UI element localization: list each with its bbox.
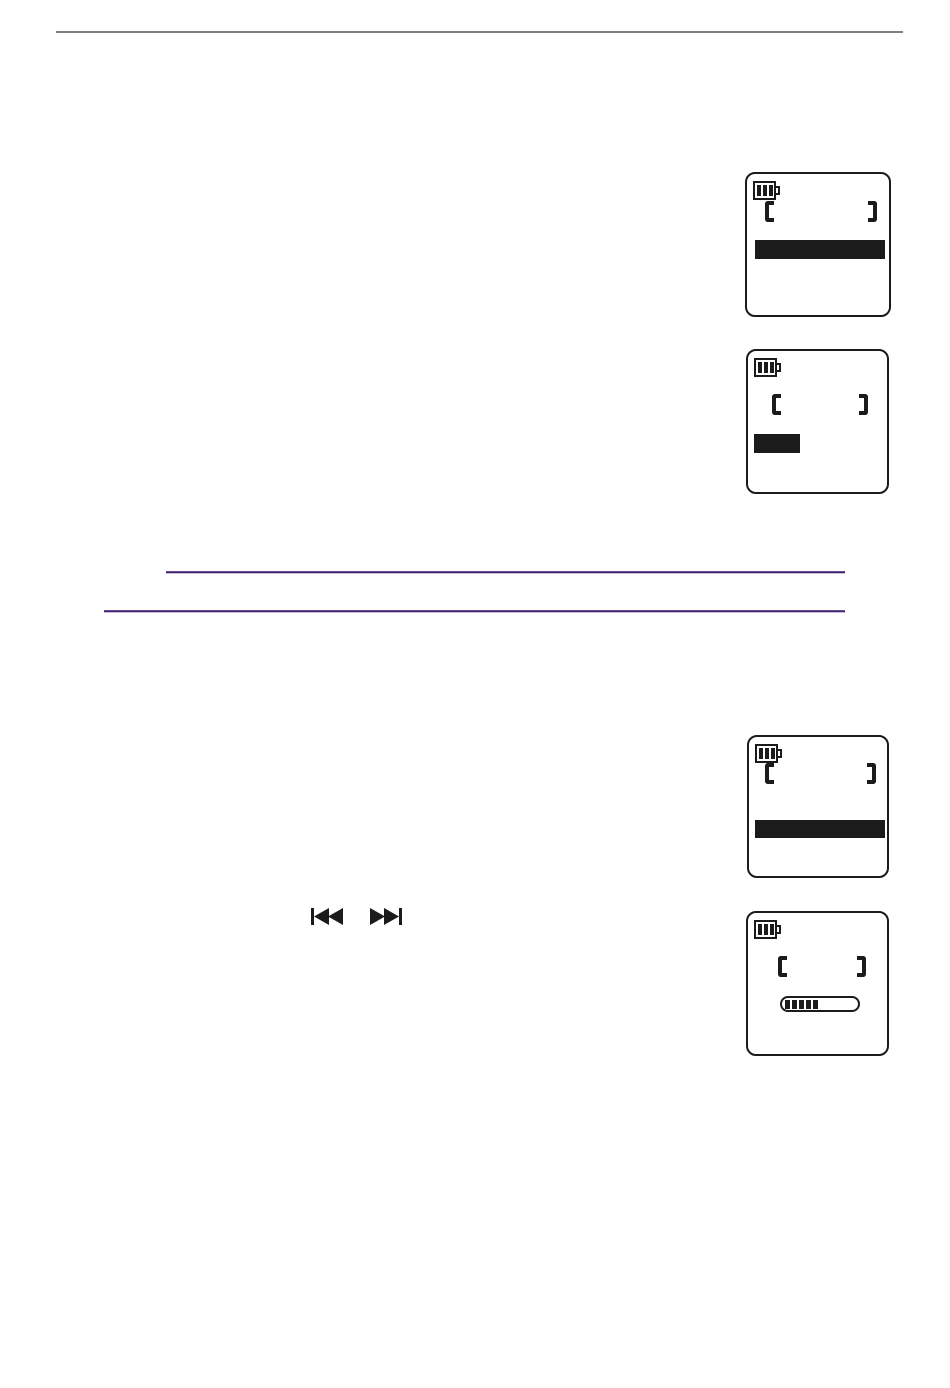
battery-terminal [778, 749, 782, 758]
manual-page [0, 0, 950, 1388]
selected-row-bar [755, 820, 885, 838]
bracket-right-icon [857, 956, 866, 977]
battery-cell [770, 924, 774, 935]
selected-row-bar [755, 240, 885, 259]
meter-segment [792, 1000, 797, 1009]
purple-divider-upper [166, 571, 845, 574]
battery-cell [764, 924, 768, 935]
meter-segment [806, 1000, 811, 1009]
battery-cell [758, 924, 762, 935]
battery-cell [763, 185, 767, 196]
battery-bars [754, 920, 777, 939]
skip-forward-icon [370, 908, 402, 925]
battery-icon [754, 358, 782, 377]
purple-divider-lower [104, 610, 845, 613]
meter-segment [799, 1000, 804, 1009]
battery-bars [753, 181, 776, 200]
battery-terminal [777, 363, 781, 372]
lcd-screen-2 [746, 349, 889, 494]
lcd-screen-1 [745, 172, 891, 317]
battery-icon [753, 181, 781, 200]
battery-terminal [776, 186, 780, 195]
lcd-screen-3 [747, 735, 889, 878]
header-rule [56, 31, 903, 33]
battery-cell [759, 748, 763, 759]
bracket-right-icon [868, 201, 877, 222]
battery-cell [770, 362, 774, 373]
selected-item-bar [754, 434, 800, 453]
battery-cell [765, 748, 769, 759]
bracket-right-icon [859, 394, 868, 415]
bracket-right-icon [867, 763, 876, 784]
battery-bars [754, 358, 777, 377]
skip-back-icon [311, 908, 343, 925]
lcd-screen-4 [746, 911, 889, 1056]
bracket-left-icon [765, 763, 774, 784]
battery-cell [769, 185, 773, 196]
bracket-left-icon [778, 956, 787, 977]
battery-cell [771, 748, 775, 759]
battery-icon [755, 744, 783, 763]
meter-segment [813, 1000, 818, 1009]
battery-cell [757, 185, 761, 196]
battery-terminal [777, 925, 781, 934]
battery-cell [758, 362, 762, 373]
bracket-left-icon [765, 201, 774, 222]
level-meter [780, 996, 860, 1012]
battery-cell [764, 362, 768, 373]
bracket-left-icon [772, 394, 781, 415]
battery-bars [755, 744, 778, 763]
battery-icon [754, 920, 782, 939]
meter-segment [785, 1000, 790, 1009]
